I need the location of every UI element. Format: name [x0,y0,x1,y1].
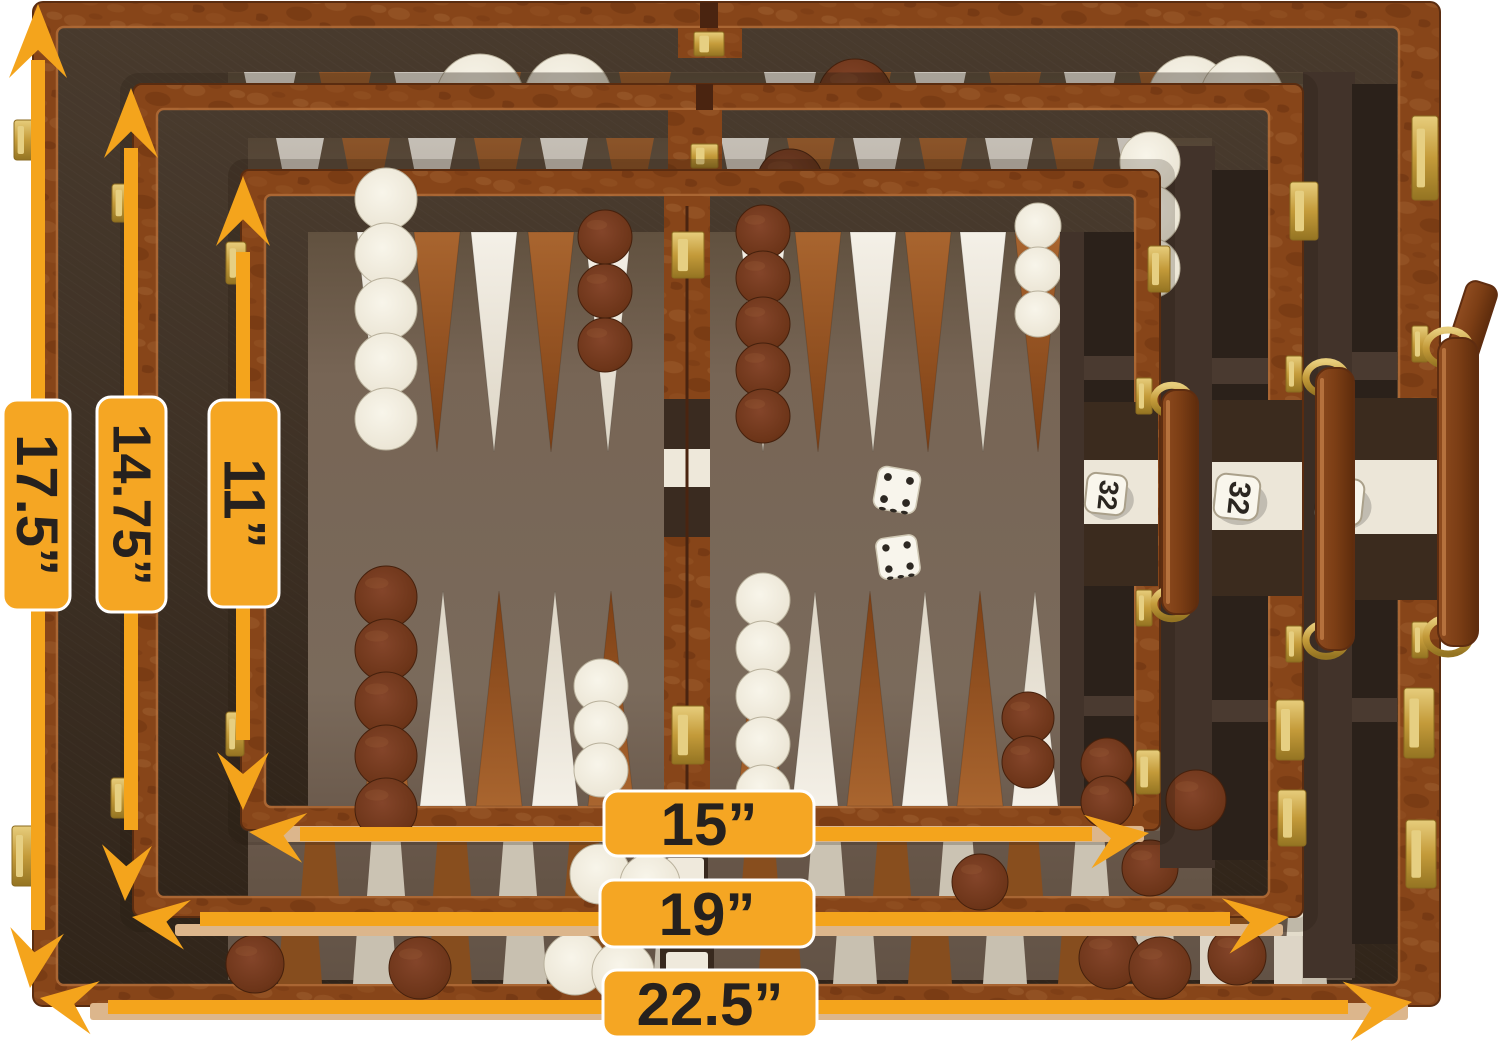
svg-text:14.75”: 14.75” [102,423,162,585]
svg-text:32: 32 [1220,480,1256,517]
svg-text:22.5”: 22.5” [637,971,784,1038]
svg-text:32: 32 [1091,479,1124,512]
svg-text:15”: 15” [661,791,758,858]
svg-text:17.5”: 17.5” [4,434,69,576]
svg-text:19”: 19” [659,881,756,948]
svg-text:11”: 11” [212,458,277,548]
